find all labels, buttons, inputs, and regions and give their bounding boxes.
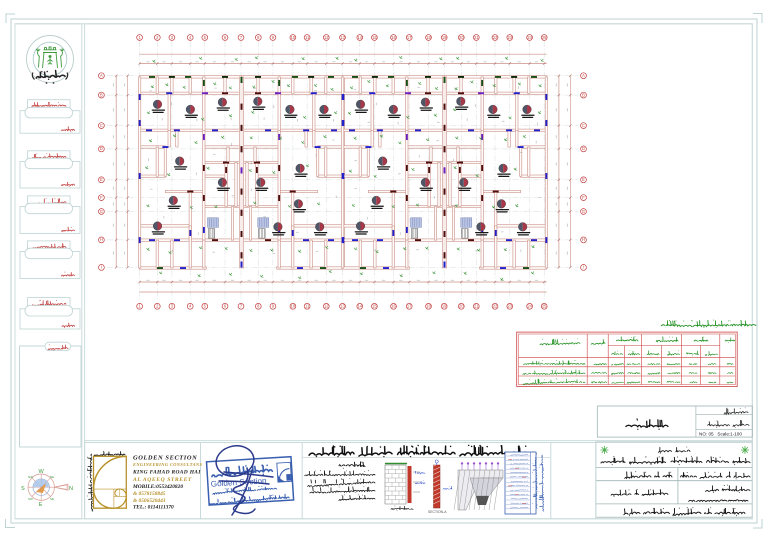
svg-text:B: B: [582, 92, 585, 97]
svg-text:C: C: [582, 123, 585, 128]
svg-text:19: 19: [442, 35, 447, 40]
svg-text:E: E: [582, 177, 585, 182]
svg-text:SECTION-A: SECTION-A: [428, 510, 447, 514]
svg-text:A: A: [582, 73, 585, 78]
svg-text:N: N: [69, 486, 73, 492]
svg-text:14: 14: [358, 35, 363, 40]
svg-text:NW: NW: [28, 475, 33, 479]
svg-text:20: 20: [459, 35, 464, 40]
svg-text:13: 13: [340, 304, 345, 309]
svg-text:10: 10: [291, 304, 296, 309]
svg-text:15: 15: [372, 35, 377, 40]
svg-text:20: 20: [459, 304, 464, 309]
svg-text:11: 11: [305, 35, 310, 40]
svg-text:TEL.: 0114111370: TEL.: 0114111370: [133, 504, 174, 510]
svg-text:KING FAHAD ROAD HAI: KING FAHAD ROAD HAI: [132, 470, 201, 476]
svg-text:24: 24: [527, 35, 532, 40]
svg-text:H: H: [582, 237, 585, 242]
svg-text:15: 15: [372, 304, 377, 309]
svg-text:12: 12: [324, 35, 329, 40]
svg-text:25: 25: [542, 35, 547, 40]
svg-text:16: 16: [391, 304, 396, 309]
svg-text:A: A: [100, 73, 103, 78]
svg-text:SW: SW: [28, 497, 33, 501]
svg-text:21: 21: [474, 35, 479, 40]
svg-text:D: D: [100, 146, 103, 151]
svg-text:13: 13: [340, 35, 345, 40]
svg-text:19: 19: [442, 304, 447, 309]
svg-text:B: B: [100, 92, 103, 97]
svg-text:H: H: [100, 237, 103, 242]
svg-text:23: 23: [508, 35, 513, 40]
svg-text:& 0578158845: & 0578158845: [133, 491, 166, 497]
svg-text:14: 14: [358, 304, 363, 309]
svg-text:24: 24: [527, 304, 532, 309]
svg-text:11: 11: [305, 304, 310, 309]
svg-text:G: G: [582, 209, 585, 214]
svg-text:23: 23: [508, 304, 513, 309]
svg-text:D: D: [582, 146, 585, 151]
svg-text:I: I: [101, 265, 102, 270]
svg-text:GOLDEN SECTION: GOLDEN SECTION: [133, 455, 197, 462]
svg-text:ENGINEERING CONSULTANS: ENGINEERING CONSULTANS: [132, 462, 203, 467]
svg-text:C: C: [100, 123, 103, 128]
svg-text:S: S: [21, 486, 25, 492]
svg-text:17: 17: [407, 35, 412, 40]
svg-text:21: 21: [474, 304, 479, 309]
svg-text:MOBILE:0553420820: MOBILE:0553420820: [132, 484, 183, 490]
svg-text:22: 22: [493, 35, 498, 40]
svg-text:G: G: [100, 209, 103, 214]
svg-text:25: 25: [542, 304, 547, 309]
svg-text:NE: NE: [50, 475, 54, 479]
svg-text:18: 18: [426, 304, 431, 309]
svg-text:22: 22: [493, 304, 498, 309]
svg-text:10: 10: [291, 35, 296, 40]
svg-text:W: W: [39, 469, 45, 475]
svg-text:& 0506520443: & 0506520443: [133, 498, 166, 504]
svg-text:E: E: [100, 177, 103, 182]
svg-text:SE: SE: [50, 497, 54, 501]
svg-text:E: E: [39, 502, 43, 508]
svg-text:12: 12: [324, 304, 329, 309]
svg-text:I: I: [583, 265, 584, 270]
svg-text:17: 17: [407, 304, 412, 309]
svg-text:16: 16: [391, 35, 396, 40]
svg-text:NO: 05 Scale:1-100: NO: 05 Scale:1-100: [699, 431, 742, 436]
svg-text:AL AQEEQ STREET: AL AQEEQ STREET: [132, 477, 192, 483]
svg-text:18: 18: [426, 35, 431, 40]
